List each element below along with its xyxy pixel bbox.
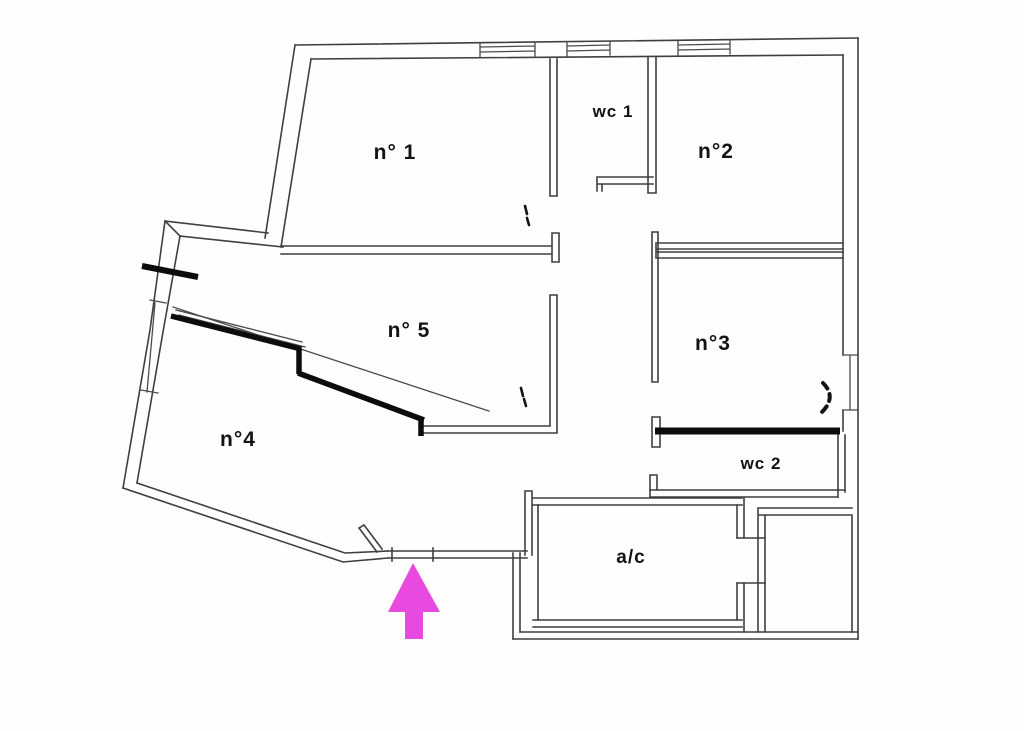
- door-marks: [521, 206, 830, 412]
- floor-plan-svg: [0, 0, 1024, 731]
- diagonal-wall-hatch: [173, 307, 489, 411]
- room-label-n4: n°4: [220, 428, 256, 452]
- room-label-n2: n°2: [698, 140, 734, 164]
- thick-walls: [142, 266, 840, 436]
- room-label-wc1: wc 1: [593, 102, 634, 122]
- room-label-n5: n° 5: [388, 319, 431, 343]
- floor-plan: n° 1 wc 1 n°2 n° 5 n°3 n°4 wc 2 a/c: [0, 0, 1024, 731]
- windows: [141, 40, 858, 410]
- room-label-ac: a/c: [616, 547, 645, 569]
- entrance-arrow-icon: [388, 563, 440, 639]
- room-label-n1: n° 1: [374, 141, 417, 165]
- interior-walls: [281, 57, 852, 632]
- room-label-wc2: wc 2: [741, 454, 782, 474]
- room-label-n3: n°3: [695, 332, 731, 356]
- outer-walls: [123, 38, 858, 639]
